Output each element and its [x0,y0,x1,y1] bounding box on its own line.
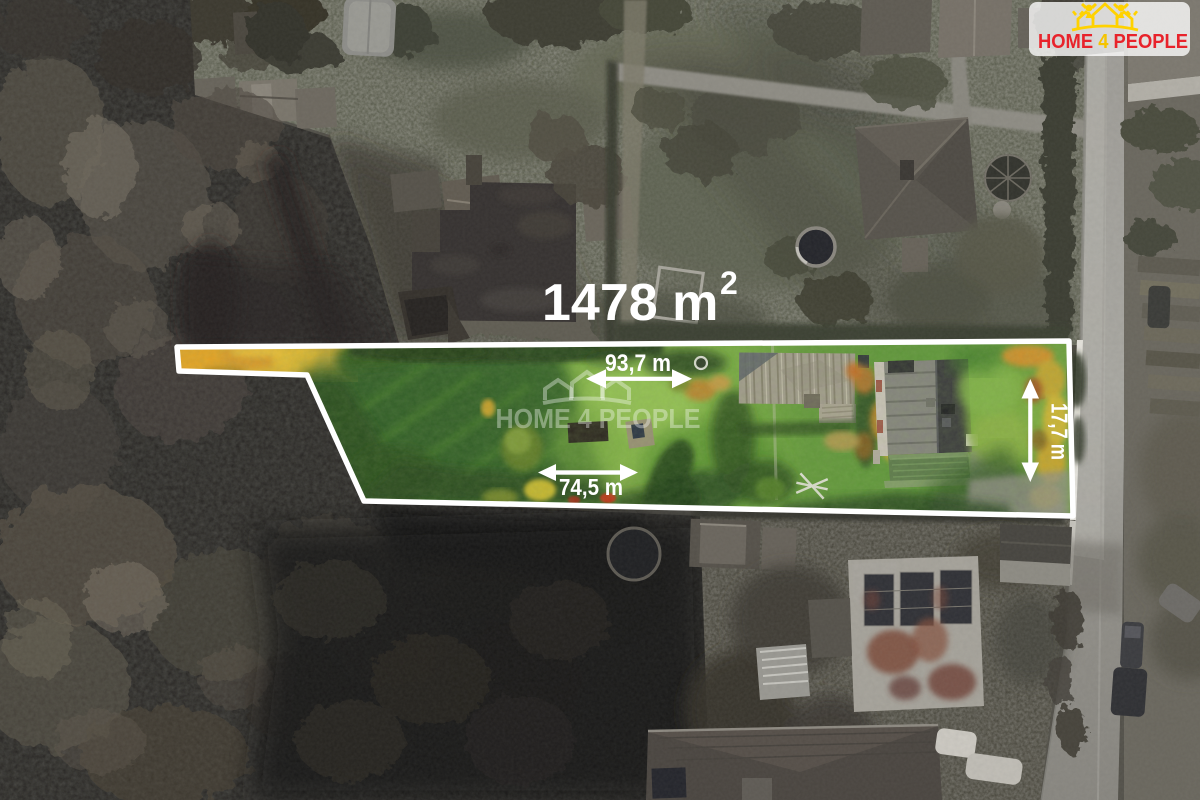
svg-text:HOME 4 PEOPLE: HOME 4 PEOPLE [1038,30,1188,53]
svg-text:17,7 m: 17,7 m [1047,403,1073,460]
svg-text:HOME 4 PEOPLE: HOME 4 PEOPLE [496,403,701,434]
svg-text:93,7 m: 93,7 m [605,350,671,377]
svg-text:1478 m: 1478 m [542,274,718,332]
svg-text:2: 2 [720,265,738,301]
svg-text:74,5 m: 74,5 m [559,474,623,500]
